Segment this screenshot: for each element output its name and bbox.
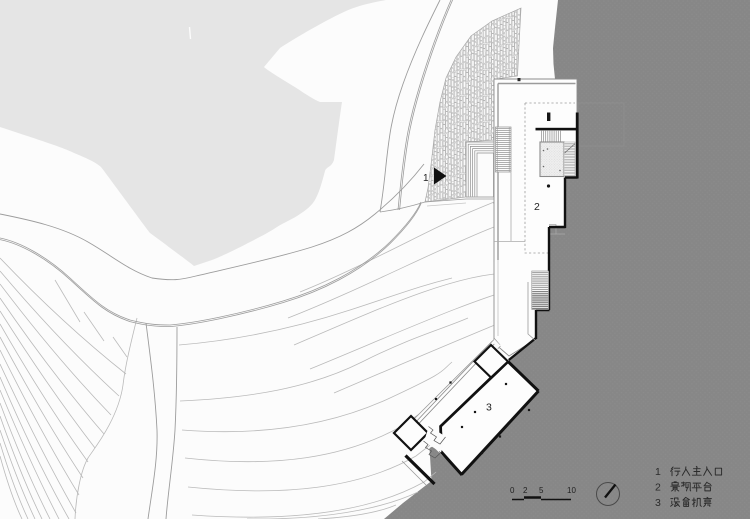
svg-text:2: 2 [655, 482, 661, 494]
svg-text:0: 0 [510, 486, 515, 495]
svg-text:1: 1 [423, 173, 429, 184]
svg-text:1: 1 [655, 466, 661, 478]
svg-text:3: 3 [486, 402, 492, 414]
svg-text:2: 2 [523, 486, 528, 495]
svg-text:5: 5 [539, 486, 544, 495]
svg-text:10: 10 [567, 486, 576, 495]
svg-text:2: 2 [534, 201, 540, 213]
svg-text:3: 3 [655, 497, 661, 509]
